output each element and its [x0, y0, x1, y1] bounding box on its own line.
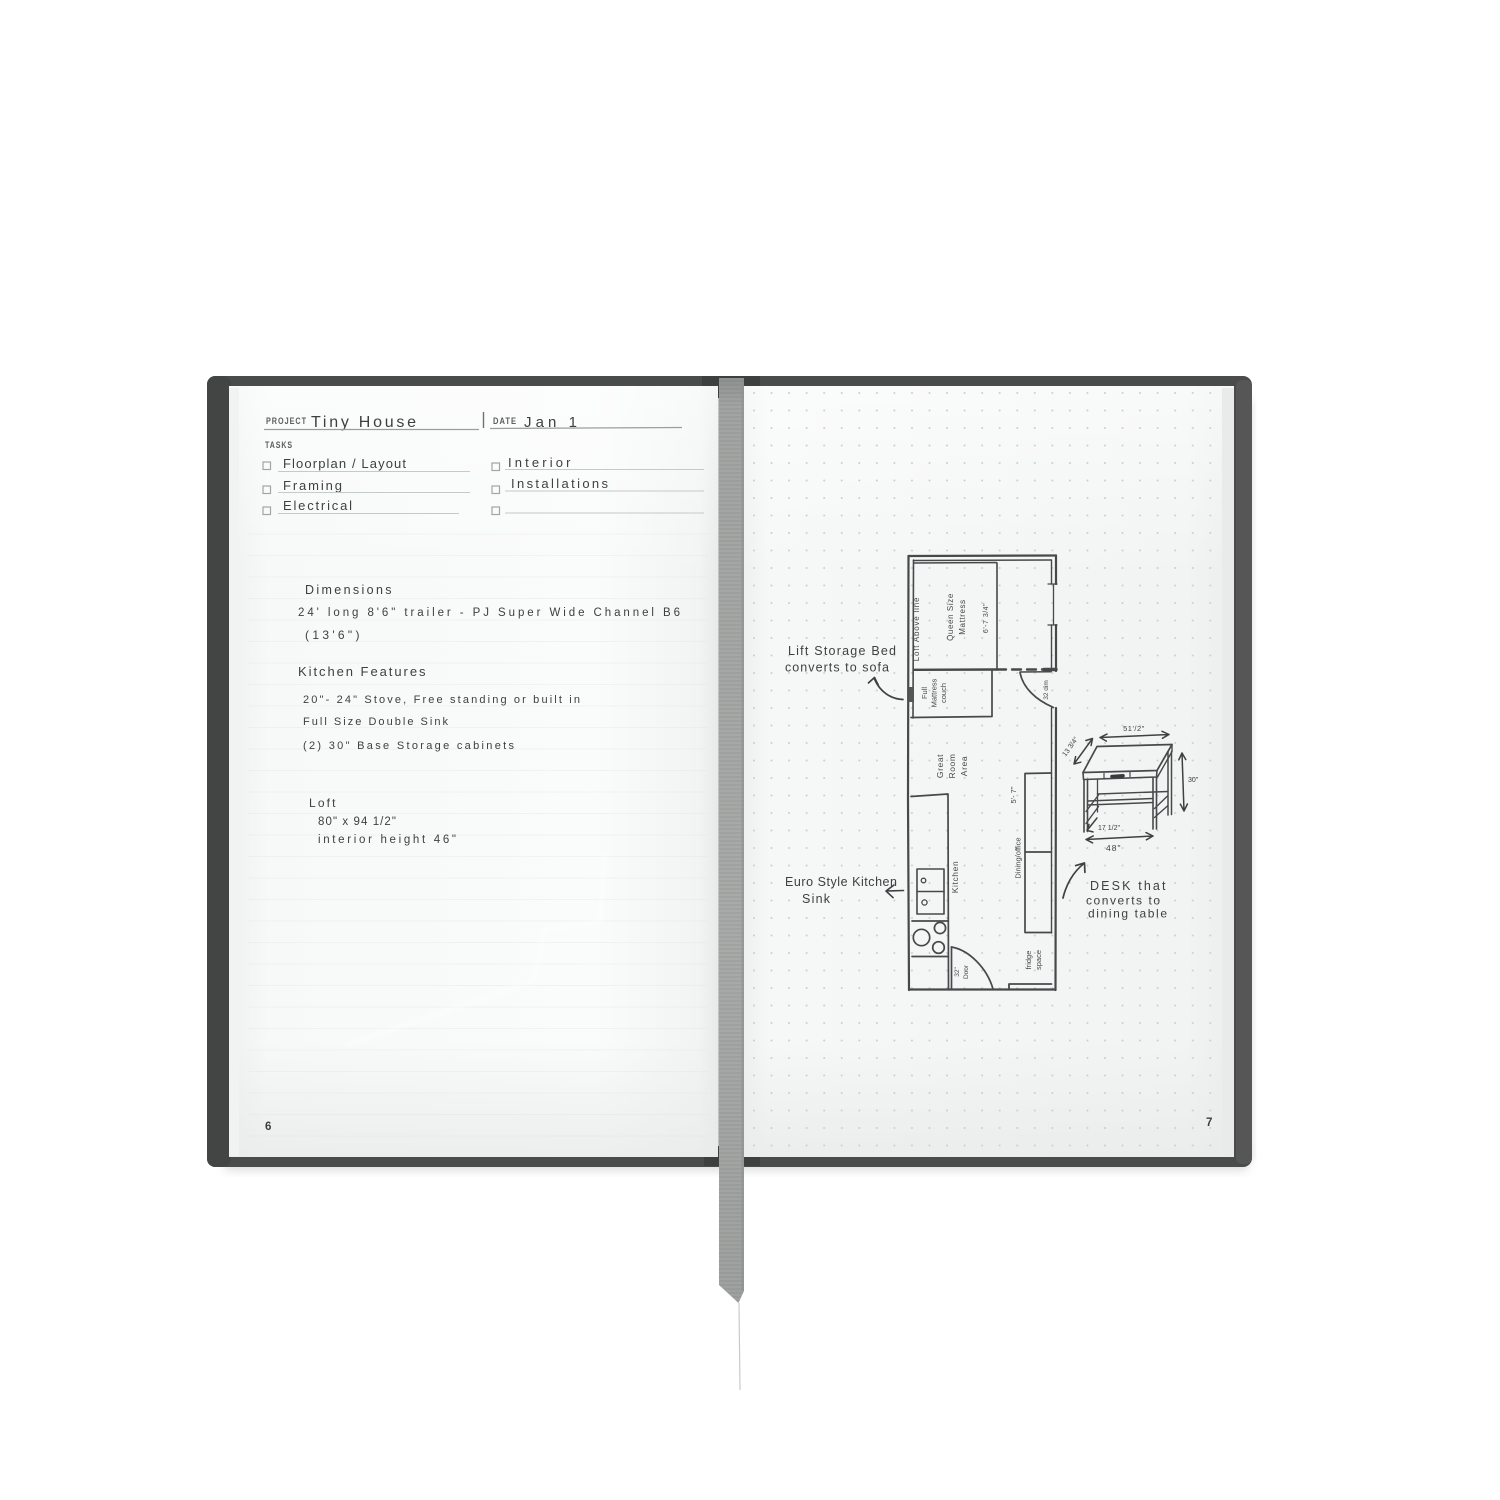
svg-text:Dining/office: Dining/office [1014, 837, 1023, 878]
svg-text:7: 7 [1206, 1117, 1212, 1129]
svg-text:(13'6"): (13'6") [305, 628, 361, 642]
svg-text:80" x 94 1/2": 80" x 94 1/2" [318, 816, 397, 828]
svg-text:Floorplan / Layout: Floorplan / Layout [283, 456, 407, 471]
svg-text:(2) 30" Base Storage cabine: (2) 30" Base Storage cabinets [303, 740, 515, 752]
svg-text:20"- 24" Stove, Free standing: 20"- 24" Stove, Free standing or built i… [303, 694, 581, 706]
svg-text:Loft: Loft [309, 796, 337, 810]
svg-text:24' long 8'6" trailer - PJ: 24' long 8'6" trailer - PJ Super Wide Ch… [298, 607, 681, 619]
svg-text:Lift Storage Bed: Lift Storage Bed [788, 644, 897, 658]
svg-text:dining table: dining table [1088, 907, 1168, 921]
svg-text:interior height 46": interior height 46" [318, 834, 457, 846]
svg-text:Electrical: Electrical [283, 498, 353, 513]
svg-text:Kitchen Features: Kitchen Features [298, 664, 427, 679]
svg-text:6: 6 [265, 1121, 271, 1133]
svg-text:32": 32" [954, 967, 961, 977]
svg-text:Framing: Framing [283, 478, 343, 493]
svg-text:fridge: fridge [1024, 951, 1033, 970]
svg-text:Kitchen: Kitchen [950, 861, 960, 894]
svg-text:DATE: DATE [493, 416, 517, 426]
svg-text:Area: Area [959, 756, 969, 776]
svg-text:6'-7 3/4": 6'-7 3/4" [983, 603, 990, 633]
svg-text:Queen Size: Queen Size [946, 593, 955, 641]
svg-text:48": 48" [1106, 843, 1121, 853]
svg-text:Full Size Double Sink: Full Size Double Sink [303, 716, 449, 728]
svg-text:5'- 7": 5'- 7" [1009, 786, 1018, 803]
svg-text:Mattress: Mattress [930, 678, 939, 707]
svg-text:Sink: Sink [802, 892, 831, 906]
svg-text:32 dim: 32 dim [1043, 680, 1050, 700]
svg-text:Great: Great [935, 754, 945, 778]
svg-text:Installations: Installations [511, 476, 609, 491]
svg-text:17 1/2": 17 1/2" [1098, 825, 1120, 832]
svg-text:DESK that: DESK that [1090, 879, 1167, 893]
svg-text:Mattress: Mattress [958, 599, 967, 634]
svg-text:Loft Above line: Loft Above line [912, 597, 921, 661]
svg-text:Interior: Interior [508, 455, 572, 470]
svg-text:Dimensions: Dimensions [305, 583, 393, 597]
svg-text:30": 30" [1188, 777, 1199, 784]
svg-text:Tiny House: Tiny House [311, 414, 418, 431]
svg-text:space: space [1034, 950, 1043, 970]
svg-text:Door: Door [963, 964, 970, 979]
svg-text:Room: Room [947, 753, 957, 778]
svg-text:converts to sofa: converts to sofa [785, 661, 890, 675]
svg-text:Full: Full [920, 687, 929, 699]
svg-text:TASKS: TASKS [265, 440, 293, 450]
svg-text:couch: couch [939, 683, 948, 703]
svg-text:Euro Style Kitchen: Euro Style Kitchen [785, 875, 898, 889]
svg-text:converts to: converts to [1086, 894, 1161, 908]
svg-text:PROJECT: PROJECT [266, 416, 307, 426]
svg-text:51'/2": 51'/2" [1123, 724, 1145, 733]
